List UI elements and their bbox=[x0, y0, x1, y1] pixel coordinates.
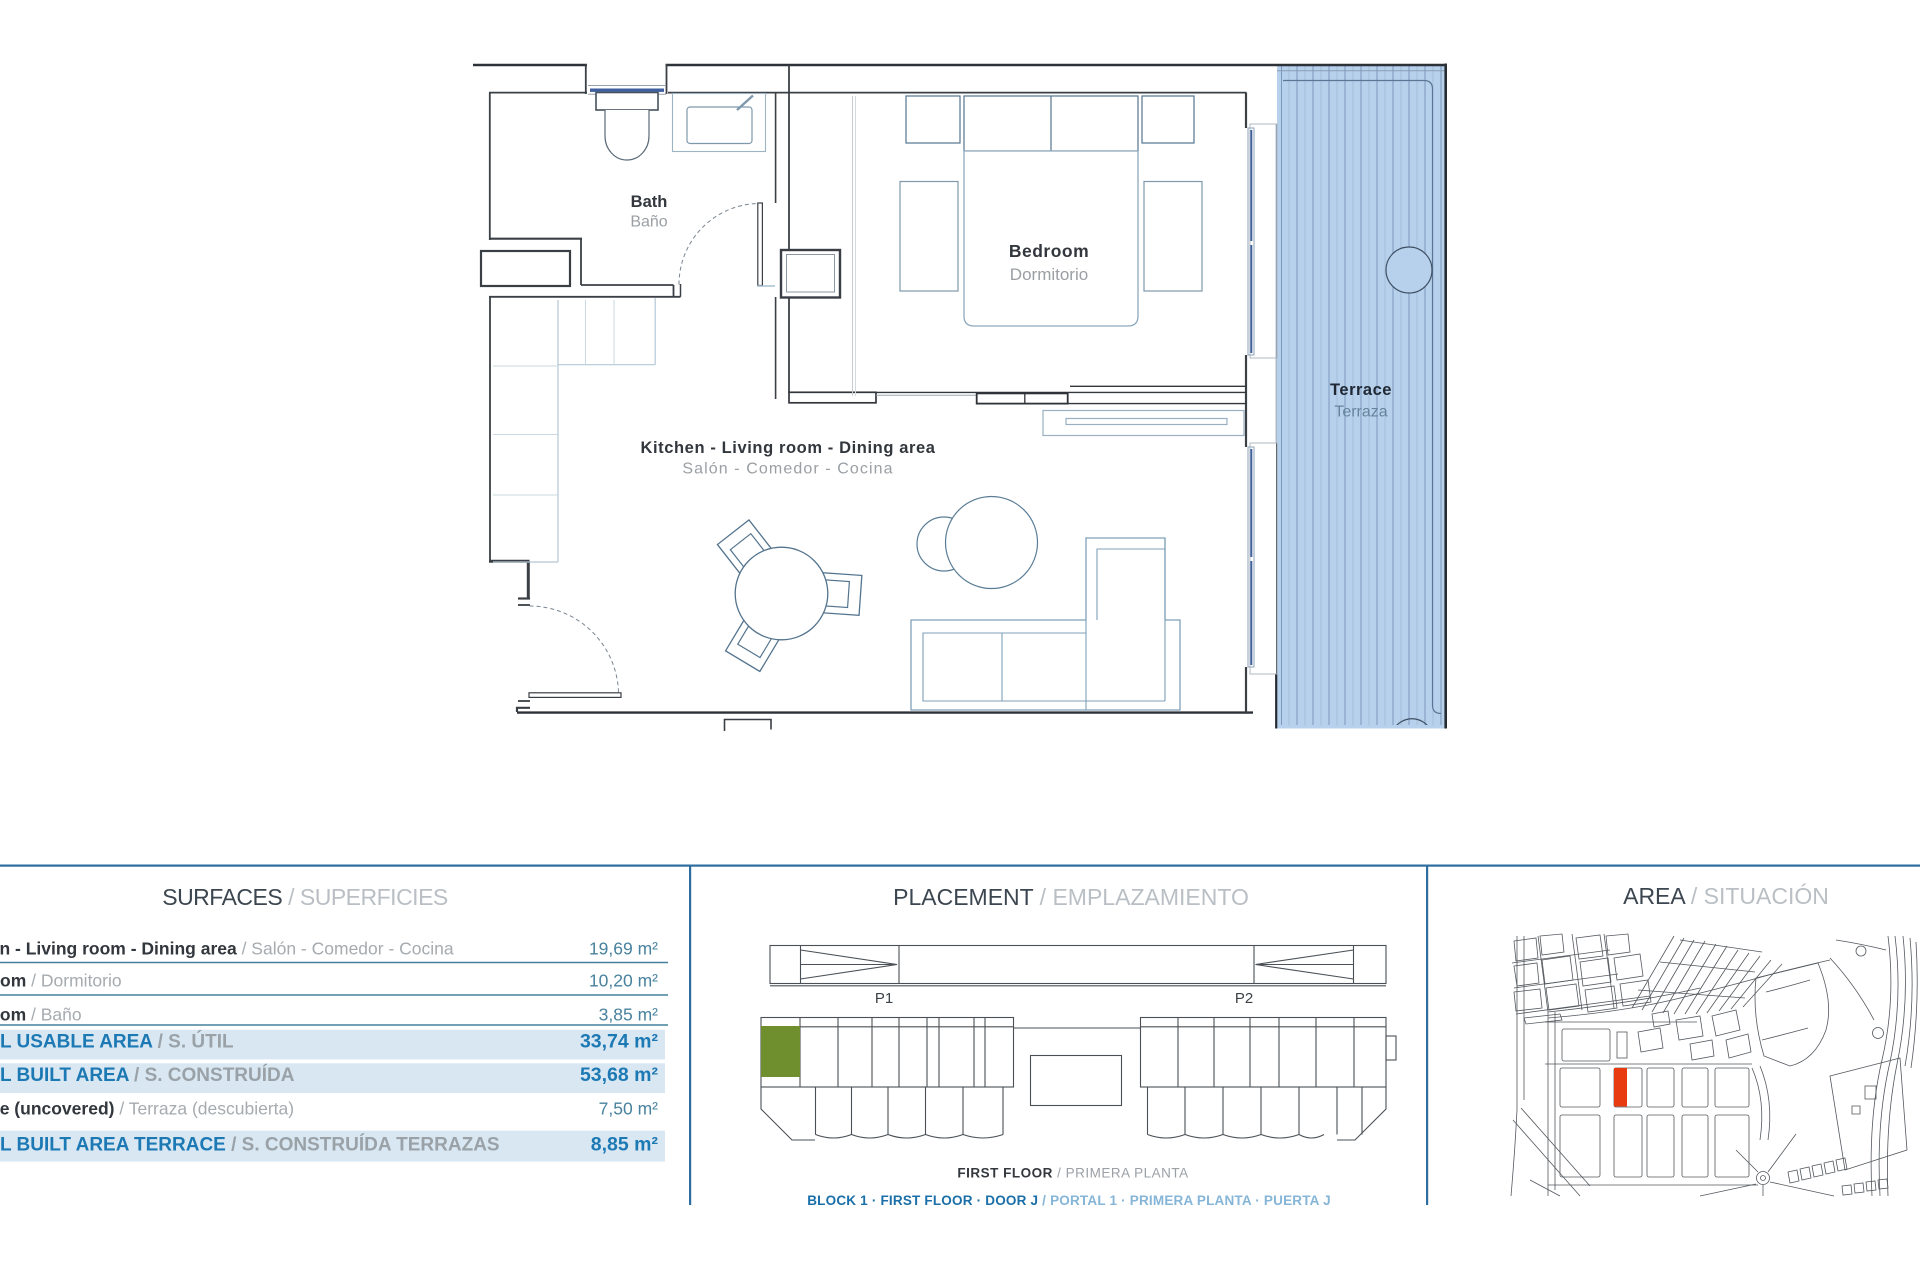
svg-text:FIRST FLOOR / PRIMERA PLANTA: FIRST FLOOR / PRIMERA PLANTA bbox=[957, 1166, 1188, 1181]
svg-text:10,20 m²: 10,20 m² bbox=[589, 971, 658, 991]
svg-text:Terrace: Terrace bbox=[1330, 381, 1392, 399]
svg-text:SURFACES / SUPERFICIES: SURFACES / SUPERFICIES bbox=[162, 884, 448, 910]
svg-text:Bedroom / Dormitorio: Bedroom / Dormitorio bbox=[0, 971, 122, 991]
svg-text:Bathroom / Baño: Bathroom / Baño bbox=[0, 1005, 82, 1025]
svg-text:Bath: Bath bbox=[631, 193, 668, 211]
svg-text:PLACEMENT / EMPLAZAMIENTO: PLACEMENT / EMPLAZAMIENTO bbox=[893, 884, 1249, 910]
svg-text:BLOCK 1 · FIRST FLOOR · DOOR J: BLOCK 1 · FIRST FLOOR · DOOR J / PORTAL … bbox=[807, 1193, 1331, 1208]
svg-text:Dormitorio: Dormitorio bbox=[1010, 265, 1088, 284]
svg-text:3,85 m²: 3,85 m² bbox=[599, 1005, 658, 1025]
svg-text:Bedroom: Bedroom bbox=[1009, 241, 1089, 261]
svg-text:Kitchen - Living room - Dining: Kitchen - Living room - Dining area bbox=[640, 439, 935, 457]
svg-text:Kitchen - Living room - Dining: Kitchen - Living room - Dining area / Sa… bbox=[0, 938, 454, 958]
svg-text:TOTAL USABLE AREA / S. ÚTIL: TOTAL USABLE AREA / S. ÚTIL bbox=[0, 1031, 234, 1053]
svg-text:TOTAL BUILT AREA / S. CONSTRUÍ: TOTAL BUILT AREA / S. CONSTRUÍDA bbox=[0, 1064, 295, 1086]
svg-text:53,68 m²: 53,68 m² bbox=[580, 1064, 659, 1086]
svg-text:Salón - Comedor - Cocina: Salón - Comedor - Cocina bbox=[682, 461, 893, 478]
svg-text:19,69 m²: 19,69 m² bbox=[589, 938, 658, 958]
svg-text:Terraza: Terraza bbox=[1334, 404, 1387, 421]
svg-text:TOTAL BUILT AREA TERRACE / S.: TOTAL BUILT AREA TERRACE / S. CONSTRUÍDA… bbox=[0, 1133, 500, 1155]
svg-text:AREA / SITUACIÓN: AREA / SITUACIÓN bbox=[1623, 883, 1829, 909]
svg-text:Baño: Baño bbox=[630, 214, 667, 231]
svg-text:Terrace (uncovered) / Terraza: Terrace (uncovered) / Terraza (descubier… bbox=[0, 1099, 294, 1119]
svg-text:P1: P1 bbox=[875, 990, 893, 1007]
svg-text:8,85 m²: 8,85 m² bbox=[591, 1133, 659, 1155]
svg-text:33,74 m²: 33,74 m² bbox=[580, 1031, 659, 1053]
svg-text:P2: P2 bbox=[1235, 990, 1253, 1007]
svg-text:7,50 m²: 7,50 m² bbox=[599, 1099, 658, 1119]
